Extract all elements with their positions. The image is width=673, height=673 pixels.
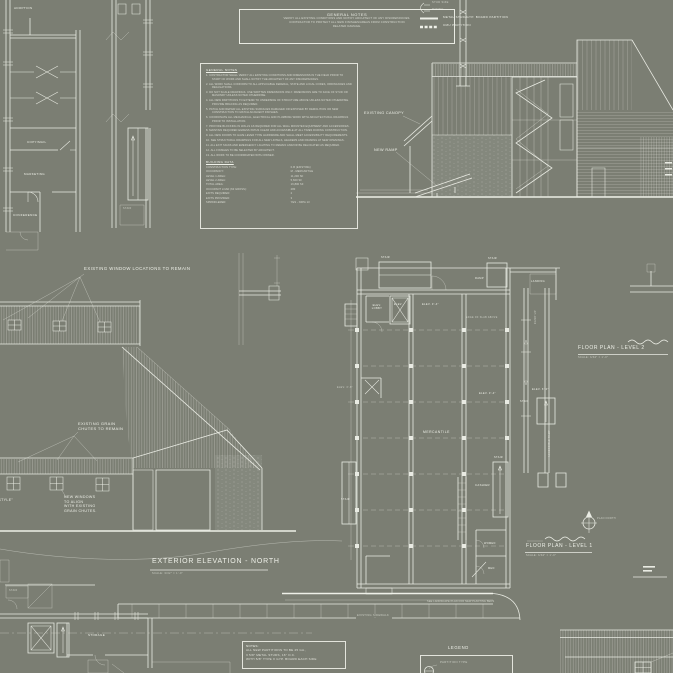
stair-label-east: STAIR: [494, 456, 503, 459]
cmu-partition-label: CMU PARTITION: [443, 24, 471, 28]
stair-label-west: STAIR: [341, 498, 350, 501]
north-elevation-title: EXTERIOR ELEVATION - NORTH: [152, 557, 280, 566]
general-notes-box: GENERAL NOTES VERIFY ALL EXISTING CONDIT…: [239, 9, 455, 44]
ramp-label: RAMP: [475, 277, 484, 280]
room-label-cashier: CASHIER: [475, 484, 490, 488]
north-arrow-icon: [581, 511, 597, 534]
stair-label-top-right: STAIR: [488, 257, 497, 260]
stair-label-bottom-left: STAIR: [9, 589, 18, 592]
floor-plan-level1-title: FLOOR PLAN - LEVEL 1: [526, 543, 593, 550]
room-label-elev-lobby: ELEV. LOBBY: [366, 304, 388, 311]
existing-window-note: EXISTING WINDOW LOCATIONS TO REMAIN: [84, 266, 190, 272]
building-data-title: BUILDING DATA: [206, 160, 352, 164]
accessible-ramp-label: ACCESSIBLE RAMP: [549, 430, 552, 457]
room-label-mercantile: MERCANTILE: [423, 430, 450, 434]
room-label-adoption: ADOPTION: [14, 7, 60, 11]
building-data-rows: CONSTRUCTION TYPE:II-B (EXISTING)OCCUPAN…: [206, 166, 352, 205]
existing-canopy-label: EXISTING CANOPY: [364, 111, 404, 116]
blueprint-sheet: GENERAL NOTES VERIFY ALL EXISTING CONDIT…: [0, 0, 673, 673]
bottom-right-elevation-lines: [560, 630, 673, 673]
room-label-elev: ELEV.: [394, 303, 403, 306]
partition-type-label: PARTITION TYPE: [440, 661, 468, 665]
section-title-squiggles: [525, 340, 668, 577]
stud-size-label: STUD SIZE: [432, 1, 449, 4]
floor-plan-level2-scale: SCALE: 3/32" = 1'-0": [578, 356, 608, 359]
general-notes-lines: VERIFY ALL EXISTING CONDITIONS AND NOTIF…: [240, 17, 454, 30]
room-label-strip-stair: STAIR: [123, 207, 132, 210]
site-lines: [118, 594, 520, 621]
elev-marker-3-8: ELEV. 3'-8": [337, 386, 353, 389]
ramp-up-label: RAMP UP: [534, 310, 537, 324]
elev-marker-3-4-a: ELEV. 3'-4": [422, 303, 439, 306]
landscape-note-label: SEE LANDSCAPE PLAN FOR NEW PLANTING BEDS: [427, 600, 494, 603]
spec-notes-title: GENERAL NOTES: [206, 68, 352, 72]
partition-notes-box: NOTES: ALL NEW PARTITIONS TO BE 25 GA.,3…: [242, 641, 346, 669]
partition-notes-lines: ALL NEW PARTITIONS TO BE 25 GA.,3 5/8" M…: [246, 648, 342, 661]
floor-plan-level2-title: FLOOR PLAN - LEVEL 2: [578, 345, 645, 352]
room-label-marketing: MARKETING: [24, 173, 45, 177]
floor-plan-level1-scale: SCALE: 3/32" = 1'-0": [526, 554, 556, 557]
rating-label: RATING: [432, 8, 444, 11]
stair-label-ramp-corridor: STAIR: [520, 400, 529, 403]
barn-doors-note: NEW "BARN STYLE" DOORS: [0, 493, 13, 507]
new-ramp-label: NEW RAMP: [374, 148, 398, 153]
metal-stud-partition-label: METAL STUD/GYP. BOARD PARTITION: [443, 16, 508, 20]
room-label-women: WOMEN: [484, 542, 496, 545]
elev-marker-3-4-b: ELEV. 3'-4": [479, 392, 496, 395]
room-label-conference: CONFERENCE: [13, 214, 38, 218]
elev-marker-6-0: ELEV. 6'-0": [532, 388, 549, 391]
plan-north-label: PLAN NORTH: [597, 517, 616, 520]
spec-notes-items: CONTRACTOR SHALL VERIFY ALL EXISTING CON…: [206, 74, 352, 157]
room-label-men: MEN: [488, 567, 495, 570]
existing-sidewalk-label: EXISTING SIDEWALK: [356, 614, 390, 617]
dimension-detail-lines: [239, 253, 281, 345]
spec-notes-block: GENERAL NOTES CONTRACTOR SHALL VERIFY AL…: [200, 63, 358, 229]
stair-label-top-left: STAIR: [381, 256, 390, 259]
room-label-copy-mail: COPY/MAIL: [27, 141, 47, 145]
new-windows-note: NEW WINDOWS TO ALIGN WITH EXISTING GRAIN…: [64, 495, 97, 514]
existing-grain-note: EXISTING GRAIN CHUTES TO REMAIN: [78, 421, 123, 431]
landing-label: LANDING: [531, 280, 545, 283]
building-section-lines: [356, 40, 673, 197]
room-label-storage: STORAGE: [88, 634, 105, 638]
north-elevation-scale: SCALE: 3/32" = 1'-0": [152, 572, 183, 575]
edge-of-slab-note: EDGE OF SLAB ABOVE: [466, 317, 498, 320]
legend-title: LEGEND: [448, 645, 469, 650]
ramp-detail-lines: [510, 264, 673, 487]
strip-plan-lines: [106, 0, 153, 228]
north-elevation-lines: [0, 274, 342, 570]
